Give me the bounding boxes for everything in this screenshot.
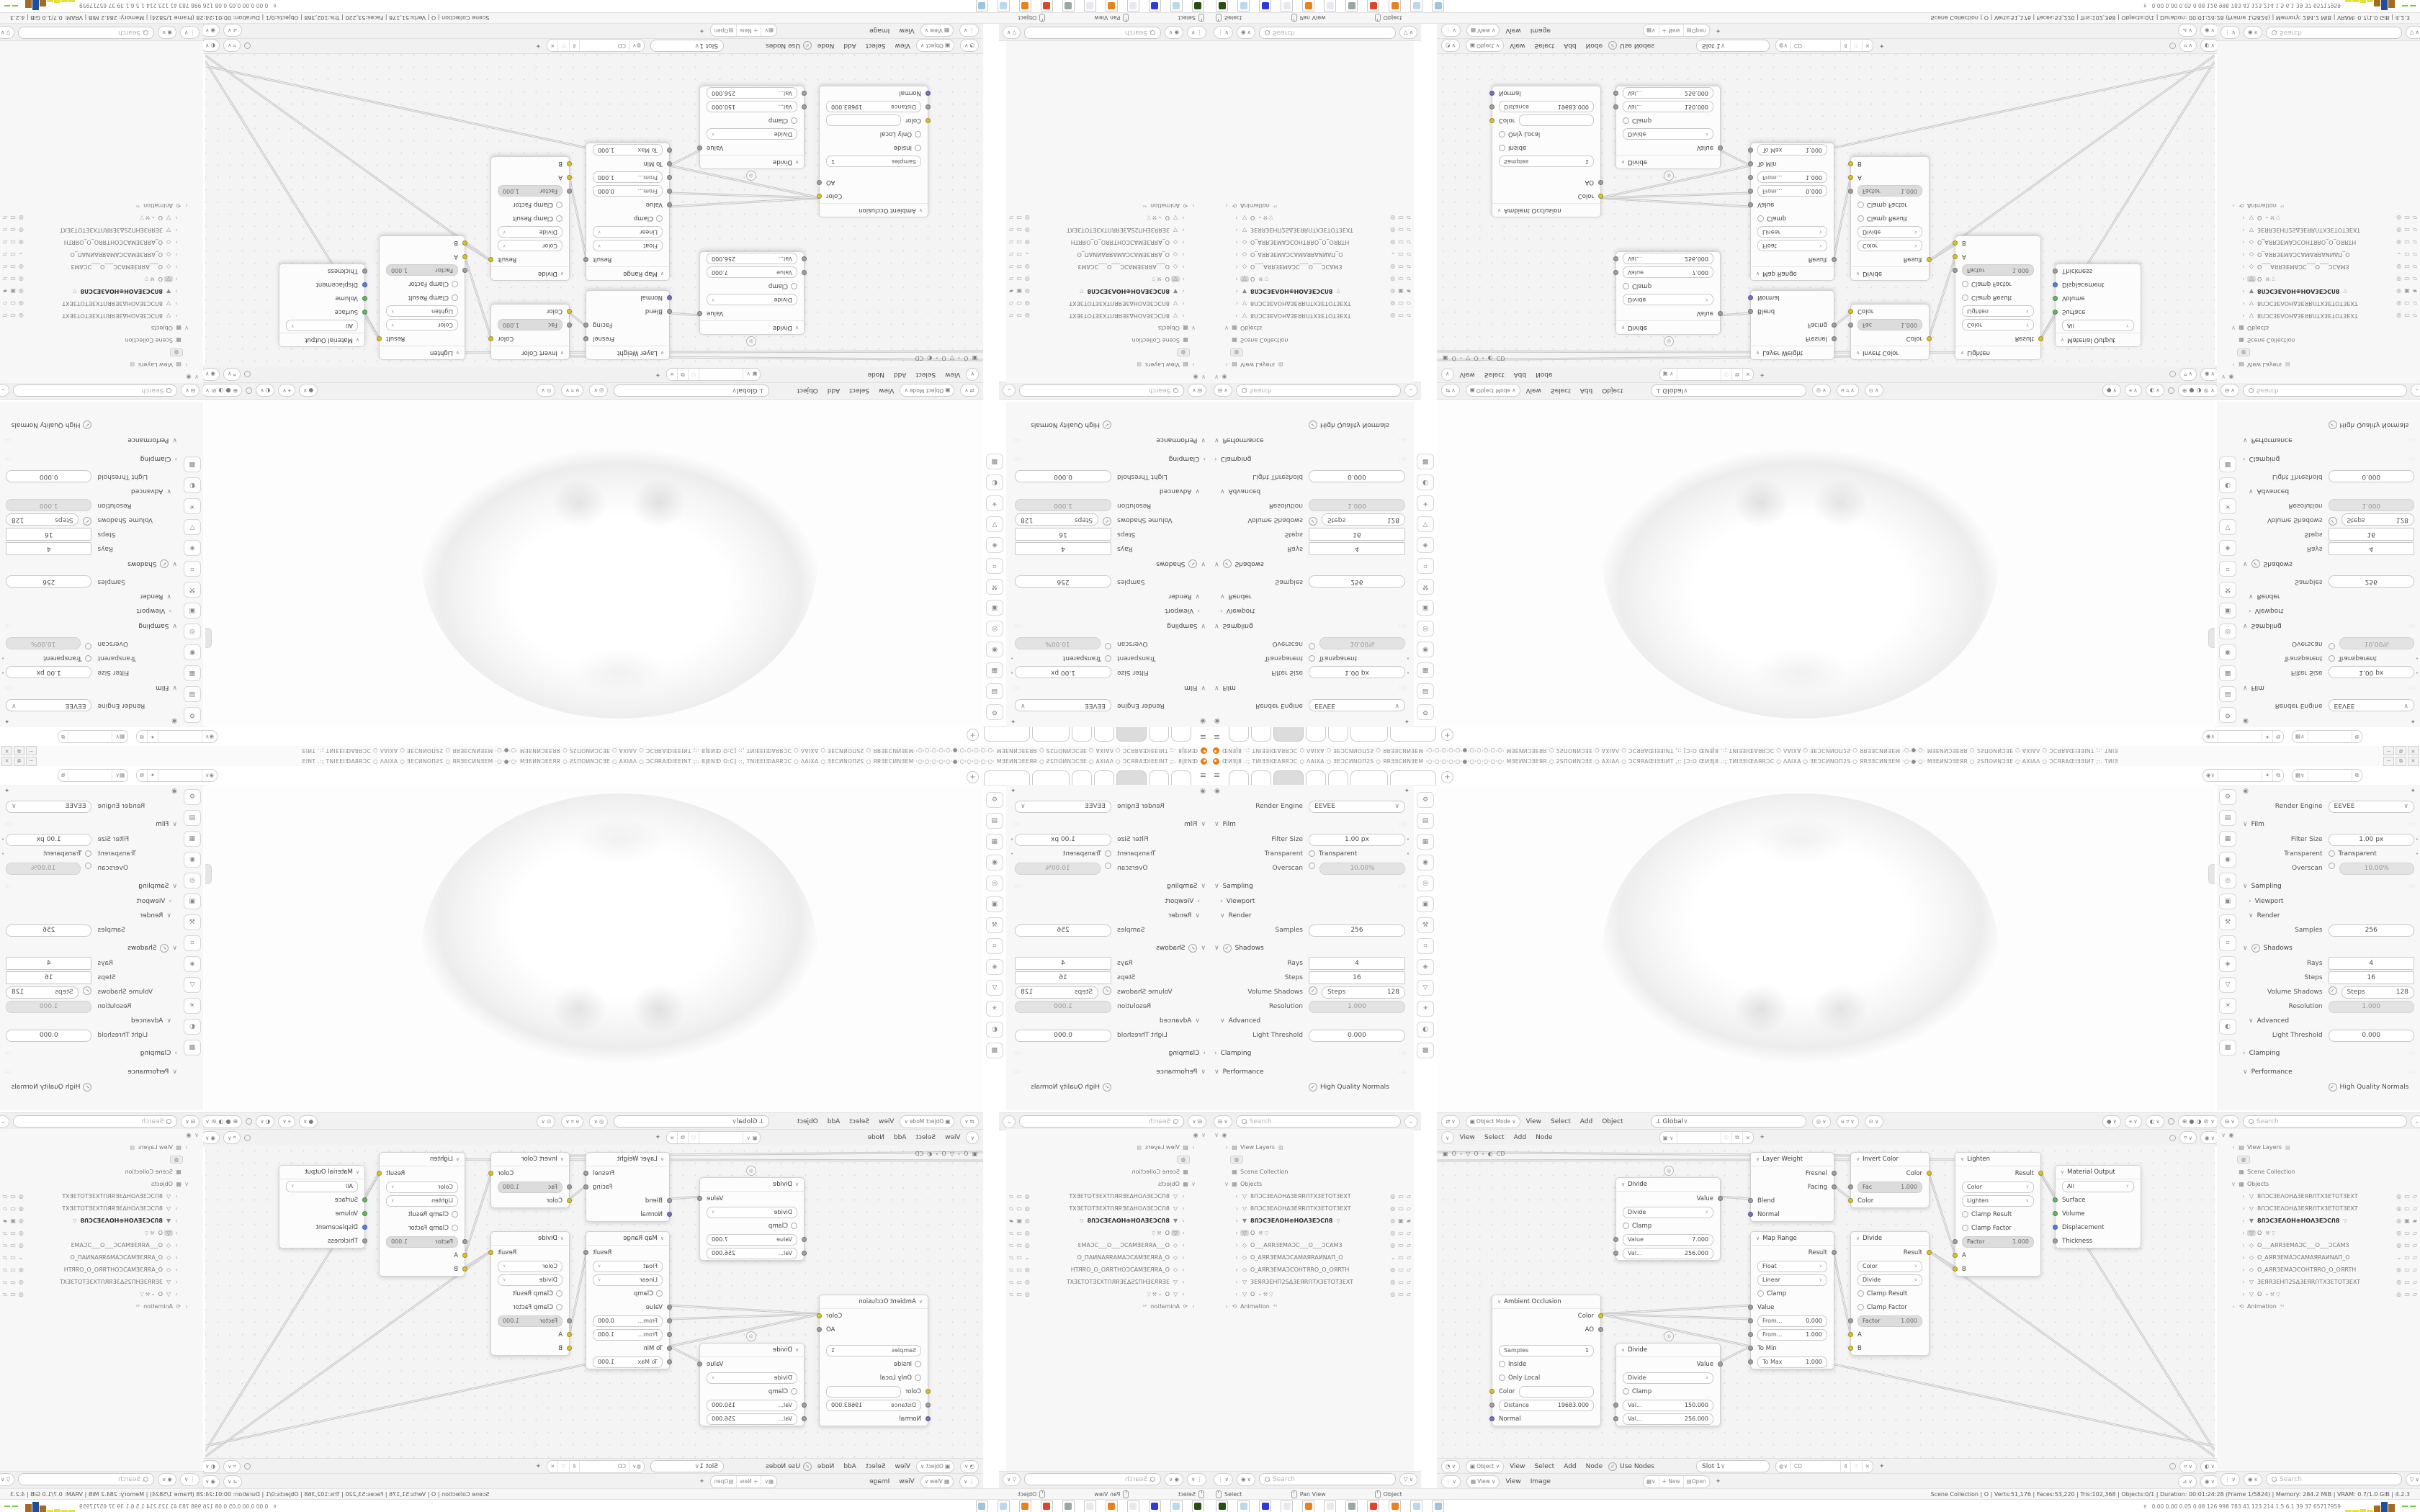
subsection-render[interactable]: ∨Render <box>2238 909 2420 923</box>
properties-tab-icon-8[interactable]: ◈ <box>184 956 201 972</box>
input-socket[interactable] <box>1848 1184 1853 1189</box>
object-name[interactable]: O <box>1250 1291 1255 1297</box>
pin-icon[interactable]: ✦ <box>536 42 542 50</box>
node-toggle-clamp-result[interactable]: Clamp Result <box>513 215 563 222</box>
render-camera-icon[interactable]: ▱ <box>3 1279 7 1285</box>
properties-tab-icon-4[interactable]: ◎ <box>184 624 201 639</box>
properties-tab-icon-0[interactable]: ⚙ <box>1417 704 1434 720</box>
section-shadows[interactable]: ∨✓Shadows <box>1210 940 1411 956</box>
section-film[interactable]: ∨Film∷∷ <box>0 680 181 696</box>
expand-icon[interactable]: › <box>1233 1242 1240 1248</box>
shader-node-layer-weight[interactable]: ∨Layer WeightFresnelFacingBlendNormal <box>1750 290 1834 360</box>
node-select[interactable]: All∨ <box>286 1181 358 1192</box>
value-field-samples[interactable]: 256 <box>1309 924 1405 937</box>
render-camera-icon[interactable]: ▱ <box>2413 239 2417 246</box>
viewport-display-icon[interactable]: ▣ <box>1016 288 1022 294</box>
checkbox-icon[interactable]: ✓ <box>1309 518 1317 526</box>
properties-tab-icon-0[interactable]: ⚙ <box>2219 707 2236 723</box>
checkbox-high-quality-normals[interactable]: ✓High Quality Normals <box>2329 1083 2414 1092</box>
node-select[interactable]: Color∨ <box>1857 1261 1922 1272</box>
output-socket[interactable] <box>583 336 588 341</box>
shield-icon[interactable]: ♡ <box>688 1132 699 1143</box>
checkbox-icon[interactable]: ✓ <box>2251 944 2260 953</box>
window-tab-6[interactable] <box>984 727 1030 742</box>
visibility-eye-icon[interactable]: ◎ <box>19 1279 24 1285</box>
node-value-field[interactable]: Val...150.000 <box>707 1400 797 1411</box>
display-dropdown[interactable]: ◉∨ <box>1165 27 1183 40</box>
open-image-button[interactable]: ▤ Open <box>711 25 736 37</box>
node-value-field[interactable]: Value7.000 <box>707 1234 797 1246</box>
image-name-field[interactable] <box>2308 732 2352 743</box>
render-camera-icon[interactable]: ▰ <box>1407 288 1411 294</box>
node-select[interactable]: Divide∨ <box>1857 1274 1922 1286</box>
outliner-row[interactable]: ›⟲Animation⁴² <box>1006 1300 1210 1313</box>
properties-tab-icon-6[interactable]: ⚒ <box>1417 579 1434 595</box>
snap-magnet-icon[interactable]: ⊎⌗∨ <box>1837 384 1859 397</box>
material-slot-select[interactable]: Slot 1∨ <box>650 1460 724 1472</box>
value-field-filter-size[interactable]: 1.00 px <box>1309 834 1405 846</box>
section-shadows[interactable]: ∨✓Shadows <box>1009 556 1210 572</box>
visibility-eye-icon[interactable]: ⌄ <box>2397 1254 2402 1261</box>
section-clamping[interactable]: ›Clamping∷∷ <box>2238 451 2420 467</box>
properties-tab-icon-2[interactable]: ▦ <box>1417 662 1434 678</box>
taskbar-app-icon-3[interactable] <box>1127 1500 1139 1512</box>
menu-view[interactable]: View <box>1526 1118 1541 1125</box>
breadcrumb-material[interactable]: CD <box>1497 355 1505 361</box>
expand-icon[interactable]: › <box>2240 300 2247 307</box>
properties-tab-icon-12[interactable]: ▩ <box>986 454 1003 469</box>
node-select[interactable]: Float∨ <box>593 240 663 252</box>
checkbox-icon[interactable]: ✓ <box>1103 518 1111 526</box>
input-value-field[interactable] <box>1519 115 1594 127</box>
taskbar-app-icon-0[interactable] <box>1192 1500 1204 1512</box>
input-socket[interactable] <box>362 1238 367 1243</box>
object-name[interactable]: View Layers <box>2247 361 2282 368</box>
viewport-display-icon[interactable]: ▣ <box>10 288 16 294</box>
subsection-advanced[interactable]: ∨Advanced <box>0 484 181 498</box>
overlays-icon[interactable]: ●∨ <box>299 1115 318 1128</box>
window-tab-3[interactable] <box>1306 770 1326 785</box>
render-camera-icon[interactable]: ▱ <box>1407 300 1411 307</box>
outliner-row[interactable]: ›◇O___AЯR3EMAƆC___O___ƆCAM3◎▭▱ <box>2217 261 2420 273</box>
outliner-row[interactable]: ◍ <box>0 346 203 359</box>
menu-object[interactable]: Object <box>1602 1118 1623 1125</box>
expand-icon[interactable]: › <box>173 276 180 282</box>
taskbar-app-icon-6[interactable] <box>1345 0 1358 12</box>
outliner-row[interactable]: ›▽O⌁ ⚒ ▽◎▭▱ <box>2217 1288 2420 1300</box>
shading-mode-3[interactable]: ⊘ <box>212 387 217 394</box>
outliner-search-input[interactable]: Search <box>13 384 177 397</box>
object-name[interactable]: O_AЯR3EMAƆCAMAЯRAИNAΠ_O <box>71 251 163 258</box>
expand-icon[interactable]: › <box>2230 1303 2237 1310</box>
properties-tab-icon-4[interactable]: ◎ <box>2219 624 2236 639</box>
pin-icon[interactable]: ✦ <box>655 371 661 378</box>
expand-icon[interactable]: › <box>173 1266 180 1273</box>
properties-tab-icon-2[interactable]: ▦ <box>986 662 1003 678</box>
output-socket[interactable] <box>488 257 493 262</box>
node-toggle-clamp[interactable]: Clamp <box>768 283 797 290</box>
input-socket[interactable] <box>1748 1346 1753 1351</box>
snap-grid-icon[interactable]: ⌗∨ <box>223 40 241 53</box>
input-socket[interactable] <box>667 1198 672 1203</box>
breadcrumb-object[interactable]: O <box>1452 355 1456 361</box>
taskbar-app-icon-9[interactable] <box>998 1500 1010 1512</box>
shader-node-divide[interactable]: ∨DivideResultColor∨Divide∨Clamp ResultCl… <box>1850 1231 1930 1356</box>
search-input[interactable]: Search <box>1024 1473 1161 1485</box>
use-nodes-checkbox[interactable]: ✓Use Nodes <box>766 1462 812 1471</box>
expand-icon[interactable]: › <box>1233 1279 1240 1285</box>
node-toggle-clamp-factor[interactable]: Clamp Factor <box>408 281 458 288</box>
outliner-row[interactable]: ›▤View Layers▤ <box>1006 1141 1210 1153</box>
overlays-icon[interactable]: ●∨ <box>2102 384 2121 397</box>
node-value-field[interactable]: Distance19683.000 <box>826 102 921 113</box>
toggle-circle[interactable] <box>1105 863 1111 869</box>
node-value-field[interactable]: Val...256.000 <box>707 1413 797 1425</box>
outliner-row[interactable]: ›◇O_AЯR3EMAƆCOHTЯRO_O_OЯRTH◎▭▱ <box>1210 236 1414 248</box>
view-mode-select[interactable]: ▦View∨ <box>1466 1475 1500 1488</box>
visibility-eye-icon[interactable]: ◎ <box>1390 1230 1395 1236</box>
properties-tab-icon-7[interactable]: ⌗ <box>184 561 201 577</box>
taskbar-app-icon-7[interactable] <box>1367 1500 1379 1512</box>
node-tree-icon[interactable]: ▣ ∨ <box>1660 369 1677 380</box>
node-header[interactable]: ∨Map Range <box>1751 266 1834 280</box>
properties-tab-icon-10[interactable]: ☀ <box>986 495 1003 511</box>
expand-icon[interactable]: › <box>1233 288 1240 294</box>
pin-icon[interactable]: ✦ <box>699 1478 705 1485</box>
expand-icon[interactable]: › <box>1180 264 1187 270</box>
output-socket[interactable] <box>583 1250 588 1255</box>
section-clamping[interactable]: ›Clamping∷∷ <box>1210 1045 1411 1061</box>
input-socket[interactable] <box>1489 1416 1494 1421</box>
taskbar-app-icon-5[interactable] <box>1084 1500 1096 1512</box>
image-icon[interactable]: ▦ ∨ <box>1644 25 1659 37</box>
expand-icon[interactable]: › <box>1190 1144 1197 1151</box>
outliner-row[interactable]: ›▼8ՈƆC3EΛOH⊕HOΛ3EƆCՈ8▽◎▣▰ <box>1006 285 1210 297</box>
outliner-row[interactable]: ›▤View Layers▤ <box>0 359 203 371</box>
object-name[interactable]: View Layers <box>1145 1144 1180 1151</box>
input-socket[interactable] <box>567 161 572 166</box>
render-camera-icon[interactable]: ▱ <box>3 1291 7 1297</box>
visibility-eye-icon[interactable]: ◎ <box>1390 239 1395 246</box>
section-clamping[interactable]: ›Clamping∷∷ <box>1009 451 1210 467</box>
input-value-field[interactable] <box>826 115 901 127</box>
node-toggle-clamp-result[interactable]: Clamp Result <box>408 1211 458 1218</box>
properties-tab-icon-6[interactable]: ⚒ <box>184 914 201 930</box>
output-socket[interactable] <box>817 1327 822 1332</box>
node-header[interactable]: ∨Divide <box>1616 320 1720 334</box>
input-socket[interactable] <box>926 1403 931 1408</box>
shading-extra-toggle[interactable] <box>2168 1118 2174 1125</box>
object-name[interactable]: Scene Collection <box>1131 1169 1180 1175</box>
image-select-group[interactable]: ▦ ∨ + New ▤ Open <box>710 24 777 37</box>
outliner-display-mode-dropdown[interactable]: ⊟∨ <box>2220 1115 2239 1128</box>
node-toggle-clamp-factor[interactable]: Clamp Factor <box>1857 202 1907 209</box>
node-select[interactable]: Divide∨ <box>498 1274 563 1286</box>
outliner-search-input[interactable]: Search <box>1236 1115 1401 1128</box>
properties-tab-icon-10[interactable]: ☀ <box>2219 998 2236 1014</box>
expand-icon[interactable]: › <box>2240 251 2247 258</box>
visibility-eye-icon[interactable]: ⌄ <box>1025 251 1030 258</box>
toggle-circle[interactable] <box>85 850 91 857</box>
node-value-field[interactable]: To Max1.000 <box>1757 1356 1827 1368</box>
properties-tab-icon-10[interactable]: ☀ <box>986 1001 1003 1017</box>
outliner-row[interactable]: ›▽3EЯR3EHΠ2SΔ3EЯRՈTX3ETOT3EXT◎▭▱ <box>0 1276 203 1288</box>
node-select[interactable]: Color∨ <box>1962 1182 2034 1193</box>
input-socket[interactable] <box>1613 1403 1618 1408</box>
editor-type-dropdown[interactable]: ⇄∨ <box>1441 1115 1460 1128</box>
section-sampling[interactable]: ∨Sampling∷∷ <box>1009 618 1210 634</box>
section-performance[interactable]: ∨Performance∷∷ <box>2238 432 2420 448</box>
value-field-rays[interactable]: 4 <box>6 542 91 555</box>
value-field-rays[interactable]: 4 <box>6 957 91 970</box>
render-camera-icon[interactable]: ▱ <box>1407 1230 1411 1236</box>
shading-mode-2[interactable]: ◑ <box>219 1118 224 1125</box>
toggle-icon[interactable] <box>2169 372 2176 378</box>
input-socket[interactable] <box>567 309 572 314</box>
value-field-overscan[interactable]: 10.00% <box>6 638 81 650</box>
node-select[interactable]: Divide∨ <box>707 1207 797 1218</box>
input-socket[interactable] <box>567 1184 572 1189</box>
outliner-row[interactable]: ›▽8ՈƆC3EΛOHΔ3EЯRՈTX3ETOT3EXT◎▭▱ <box>1006 1202 1210 1215</box>
viewport-display-icon[interactable]: ▭ <box>1016 1254 1022 1261</box>
section-film[interactable]: ∨Film∷∷ <box>2238 816 2420 832</box>
properties-tab-icon-8[interactable]: ◈ <box>1417 959 1434 975</box>
object-name[interactable]: O <box>1250 215 1255 221</box>
outliner-row[interactable]: ›▽O⚒ ▽◎▭▱ <box>1210 1227 1414 1239</box>
new-image-button[interactable]: + New <box>1659 1476 1684 1488</box>
properties-tab-icon-9[interactable]: ▽ <box>2219 977 2236 993</box>
material-browse-icon[interactable]: ◉ ∨ <box>202 770 217 781</box>
render-camera-icon[interactable]: ▰ <box>2413 288 2417 294</box>
section-performance[interactable]: ∨Performance∷∷ <box>1009 1064 1210 1080</box>
properties-tab-icon-8[interactable]: ◈ <box>1417 537 1434 553</box>
expand-icon[interactable]: › <box>173 239 180 246</box>
editor-type-dropdown[interactable]: ⋮∨ <box>1187 27 1206 40</box>
input-socket[interactable] <box>1613 270 1618 275</box>
value-field-rays[interactable]: 4 <box>1015 542 1111 555</box>
object-name[interactable]: Animation <box>143 1303 173 1310</box>
expand-icon[interactable]: ∨ <box>1190 325 1197 331</box>
menu-add[interactable]: Add <box>843 42 856 50</box>
object-name[interactable]: Scene Collection <box>2247 1169 2295 1175</box>
object-name[interactable]: 3EЯR3EHΠ2SΔ3EЯRՈTX3ETOT3EXT <box>1067 227 1170 233</box>
expand-icon[interactable]: › <box>2240 1279 2247 1285</box>
outliner-row[interactable]: ›⟲Animation⁴² <box>0 1300 203 1313</box>
menu-select[interactable]: Select <box>915 371 936 378</box>
image-browse-icon[interactable]: ▦ ∨ <box>2293 732 2308 743</box>
node-header[interactable]: ∨Ambient Occlusion <box>1492 203 1600 217</box>
viewport-sidebar-toggle[interactable] <box>205 628 212 648</box>
visibility-eye-icon[interactable]: ◎ <box>1390 215 1395 221</box>
shader-node-canvas[interactable]: ▣ O › ▽ O › ◐ CD ∨Ambient OcclusionColor… <box>205 1145 983 1458</box>
minimize-button[interactable]: ─ <box>26 747 37 756</box>
properties-tab-icon-8[interactable]: ◈ <box>986 959 1003 975</box>
taskbar-app-icon-9[interactable] <box>998 0 1010 12</box>
object-name[interactable]: O_AЯR3EMAƆCAMAЯRAИNAΠ_O <box>1250 1254 1343 1261</box>
properties-tab-icon-0[interactable]: ⚙ <box>184 707 201 723</box>
node-header[interactable]: ∨Map Range <box>1751 1232 1834 1246</box>
gizmo-dropdown[interactable]: ⊙∨ <box>1865 384 1883 397</box>
section-film[interactable]: ∨Film∷∷ <box>1210 680 1411 696</box>
unlink-icon[interactable]: ✕ <box>1743 1132 1753 1143</box>
outliner-row[interactable]: ›▽8ՈƆC3EΛOHΔ3EЯRՈTX3ETOT3EXT◎▭▱ <box>1210 1190 1414 1202</box>
viewport-display-icon[interactable]: ▣ <box>1398 288 1404 294</box>
expand-icon[interactable]: ∨ <box>1223 325 1230 331</box>
node-value-field[interactable]: Distance19683.000 <box>826 1400 921 1411</box>
material-name[interactable]: CD <box>1791 1461 1841 1472</box>
input-value-field[interactable] <box>1519 1386 1594 1398</box>
checkbox-high-quality-normals[interactable]: ✓High Quality Normals <box>6 1083 91 1092</box>
open-image-button[interactable]: ▤ Open <box>711 1476 736 1488</box>
render-camera-icon[interactable]: ▱ <box>3 1193 7 1200</box>
window-tab-5[interactable] <box>1032 770 1070 785</box>
taskbar-app-icon-7[interactable] <box>1041 0 1053 12</box>
overlays-icon[interactable]: ●∨ <box>2102 1115 2121 1128</box>
output-socket[interactable] <box>1598 180 1603 185</box>
menu-select[interactable]: Select <box>1484 1134 1505 1141</box>
render-camera-icon[interactable]: ▱ <box>1407 1279 1411 1285</box>
viewport-display-icon[interactable]: ▭ <box>1398 239 1404 246</box>
viewport-display-icon[interactable]: ▭ <box>2404 1242 2410 1248</box>
window-tab-2[interactable] <box>1273 727 1304 742</box>
expand-icon[interactable]: ∨ <box>1213 374 1220 380</box>
node-header[interactable]: ∨Invert Color <box>1851 346 1929 359</box>
object-name[interactable]: 3EЯR3EHΠ2SΔ3EЯRՈTX3ETOT3EXT <box>60 227 163 233</box>
outliner-row[interactable]: ›◇O___AЯR3EMAƆC___O___ƆCAM3◎▭▱ <box>2217 1239 2420 1251</box>
node-toggle-clamp[interactable]: Clamp <box>634 1290 663 1297</box>
node-value-field[interactable]: Factor1.000 <box>1857 186 1922 197</box>
object-name[interactable]: 8ՈƆC3EΛOHΔ3EЯRՈTX3ETOT3EXT <box>2257 1193 2358 1200</box>
subsection-render[interactable]: ∨Render <box>0 589 181 603</box>
render-camera-icon[interactable]: ▱ <box>1009 215 1013 221</box>
viewport-3d[interactable] <box>205 785 983 1112</box>
input-socket[interactable] <box>1748 295 1753 300</box>
properties-tab-icon-5[interactable]: ▣ <box>184 603 201 618</box>
object-name[interactable]: O_AЯR3EMAƆCOHTЯRO_O_OЯRTH <box>1071 1266 1170 1273</box>
outliner-row[interactable]: ›▽8ՈƆC3EΛOHΔ3EЯRՈTX3ETOT3EXT◎▭▱ <box>1210 310 1414 322</box>
value-field-steps[interactable]: 16 <box>2329 528 2414 541</box>
value-field-resolution[interactable]: 1.000 <box>1015 1001 1111 1013</box>
rendered-torus-object[interactable] <box>421 402 817 719</box>
menu-add[interactable]: Add <box>1580 1118 1592 1125</box>
properties-tab-icon-12[interactable]: ▩ <box>184 456 201 472</box>
shader-node-map-range[interactable]: ∨Map RangeResultFloat∨Linear∨ClampValueF… <box>586 143 670 281</box>
taskbar-app-icon-1[interactable] <box>1170 1500 1183 1512</box>
node-value-field[interactable]: Samples1 <box>1499 156 1594 168</box>
outliner-row[interactable]: ›◇O___AЯR3EMAƆC___O___ƆCAM3◎▭▱ <box>0 1239 203 1251</box>
display-dropdown[interactable]: ◉∨ <box>1237 27 1255 40</box>
value-field[interactable]: Steps128 <box>1322 514 1405 526</box>
properties-editor-icon[interactable]: ◉ <box>1214 717 1220 724</box>
material-name-field[interactable] <box>158 770 202 781</box>
breadcrumb-mesh[interactable]: O <box>941 1151 946 1157</box>
menu-view[interactable]: View <box>895 42 910 50</box>
outliner-row[interactable]: ◍ <box>2217 1153 2420 1166</box>
viewport-display-icon[interactable]: ▣ <box>10 1218 16 1224</box>
output-socket[interactable] <box>377 1171 382 1176</box>
pin-icon[interactable]: ✦ <box>4 717 10 724</box>
outliner-row[interactable]: ›⟲Animation⁴² <box>1006 199 1210 212</box>
viewport-display-icon[interactable]: ▭ <box>1398 1230 1404 1236</box>
expand-icon[interactable]: › <box>1233 300 1240 307</box>
outliner-row[interactable]: ◍ <box>0 1153 203 1166</box>
add-tab-button[interactable]: + <box>1441 771 1453 783</box>
output-socket[interactable] <box>1832 1184 1837 1189</box>
viewport-display-icon[interactable]: ▭ <box>1016 215 1022 221</box>
node-toggle-clamp[interactable]: Clamp <box>1757 215 1786 222</box>
outliner-filter-toggle[interactable]: ⌄ <box>0 384 9 397</box>
unlink-icon[interactable]: ✕ <box>1743 369 1753 380</box>
outliner-row[interactable]: ∨◉ <box>2217 371 2420 383</box>
outliner-row[interactable]: ›▽8ՈƆC3EΛOHΔ3EЯRՈTX3ETOT3EXT◎▭▱ <box>2217 1190 2420 1202</box>
input-socket[interactable] <box>567 175 572 180</box>
taskbar-app-icon-0[interactable] <box>1216 1500 1228 1512</box>
node-value-field[interactable]: To Max1.000 <box>1757 145 1827 156</box>
visibility-eye-icon[interactable]: ◎ <box>1025 300 1030 307</box>
input-socket[interactable] <box>2053 1238 2058 1243</box>
render-camera-icon[interactable]: ▱ <box>3 215 7 221</box>
output-socket[interactable] <box>2038 336 2043 341</box>
object-name[interactable]: O <box>1250 276 1255 282</box>
outliner-row[interactable]: ∨◉ <box>1210 1129 1414 1141</box>
shader-id-field-group[interactable]: ◉ ∨ ✦ ⧉ <box>136 731 218 743</box>
menu-add[interactable]: Add <box>1514 371 1526 378</box>
node-header[interactable]: ∨Map Range <box>586 266 669 280</box>
object-name[interactable]: Scene Collection <box>125 337 173 343</box>
viewport-display-icon[interactable]: ▭ <box>1016 251 1022 258</box>
viewport-display-icon[interactable]: ▭ <box>10 276 16 282</box>
node-value-field[interactable]: Val...256.000 <box>1623 1413 1713 1425</box>
checkbox-icon[interactable]: ✓ <box>1103 986 1111 995</box>
render-camera-icon[interactable]: ▰ <box>1009 288 1013 294</box>
node-toggle-only-local[interactable]: Only Local <box>880 1374 921 1382</box>
input-socket[interactable] <box>667 161 672 166</box>
transform-orientation-select[interactable]: ⟂ Global∨ <box>1651 384 1806 397</box>
object-name[interactable]: O_AЯR3EMAƆCAMAЯRAИNAΠ_O <box>1077 1254 1170 1261</box>
properties-tab-icon-11[interactable]: ◐ <box>184 1019 201 1035</box>
outliner-row[interactable]: ›▽8ՈƆC3EΛOHΔ3EЯRՈTX3ETOT3EXT◎▭▱ <box>1210 1202 1414 1215</box>
search-input[interactable]: Search <box>1259 1473 1396 1485</box>
window-title-bar[interactable]: ŒИƎJ8 .:; TИIƎƎIŒAЯRƆC ○ ΛAIXA ○ ƎEƆCИNO… <box>1210 756 2420 766</box>
properties-tab-icon-5[interactable]: ▣ <box>184 894 201 909</box>
value-field-rays[interactable]: 4 <box>1015 957 1111 970</box>
expand-icon[interactable]: › <box>173 1193 180 1200</box>
shader-node-lighten[interactable]: ∨LightenResultColor∨Lighten∨Clamp Result… <box>379 235 465 360</box>
menu-select[interactable]: Select <box>1534 1463 1554 1470</box>
node-toggle-only-local[interactable]: Only Local <box>880 131 921 138</box>
render-camera-icon[interactable]: ▱ <box>2413 1193 2417 1200</box>
visibility-eye-icon[interactable]: ◎ <box>2396 300 2401 307</box>
input-socket[interactable] <box>1848 1318 1853 1323</box>
xray-icon[interactable]: ⌖∨ <box>2125 1115 2142 1128</box>
checkbox-icon[interactable]: ✓ <box>1309 986 1317 995</box>
expand-icon[interactable]: › <box>1233 276 1240 282</box>
input-socket[interactable] <box>802 1237 807 1242</box>
window-tab-1[interactable] <box>1149 727 1169 742</box>
editor-type-dropdown[interactable]: ⋮∨ <box>1441 24 1461 37</box>
expand-icon[interactable]: › <box>183 361 190 368</box>
input-socket[interactable] <box>362 1197 367 1202</box>
section-performance[interactable]: ∨Performance∷∷ <box>0 432 181 448</box>
menu-node[interactable]: Node <box>1536 1134 1553 1141</box>
render-camera-icon[interactable]: ▱ <box>3 227 7 233</box>
pin-icon[interactable]: ✦ <box>1404 788 1410 795</box>
viewport-display-icon[interactable]: ▣ <box>2404 1218 2410 1224</box>
viewport-display-icon[interactable]: ▭ <box>10 1279 16 1285</box>
copy-icon[interactable]: ⧉ <box>137 732 146 743</box>
properties-tab-icon-11[interactable]: ◐ <box>986 474 1003 490</box>
section-performance[interactable]: ∨Performance∷∷ <box>1210 432 1411 448</box>
